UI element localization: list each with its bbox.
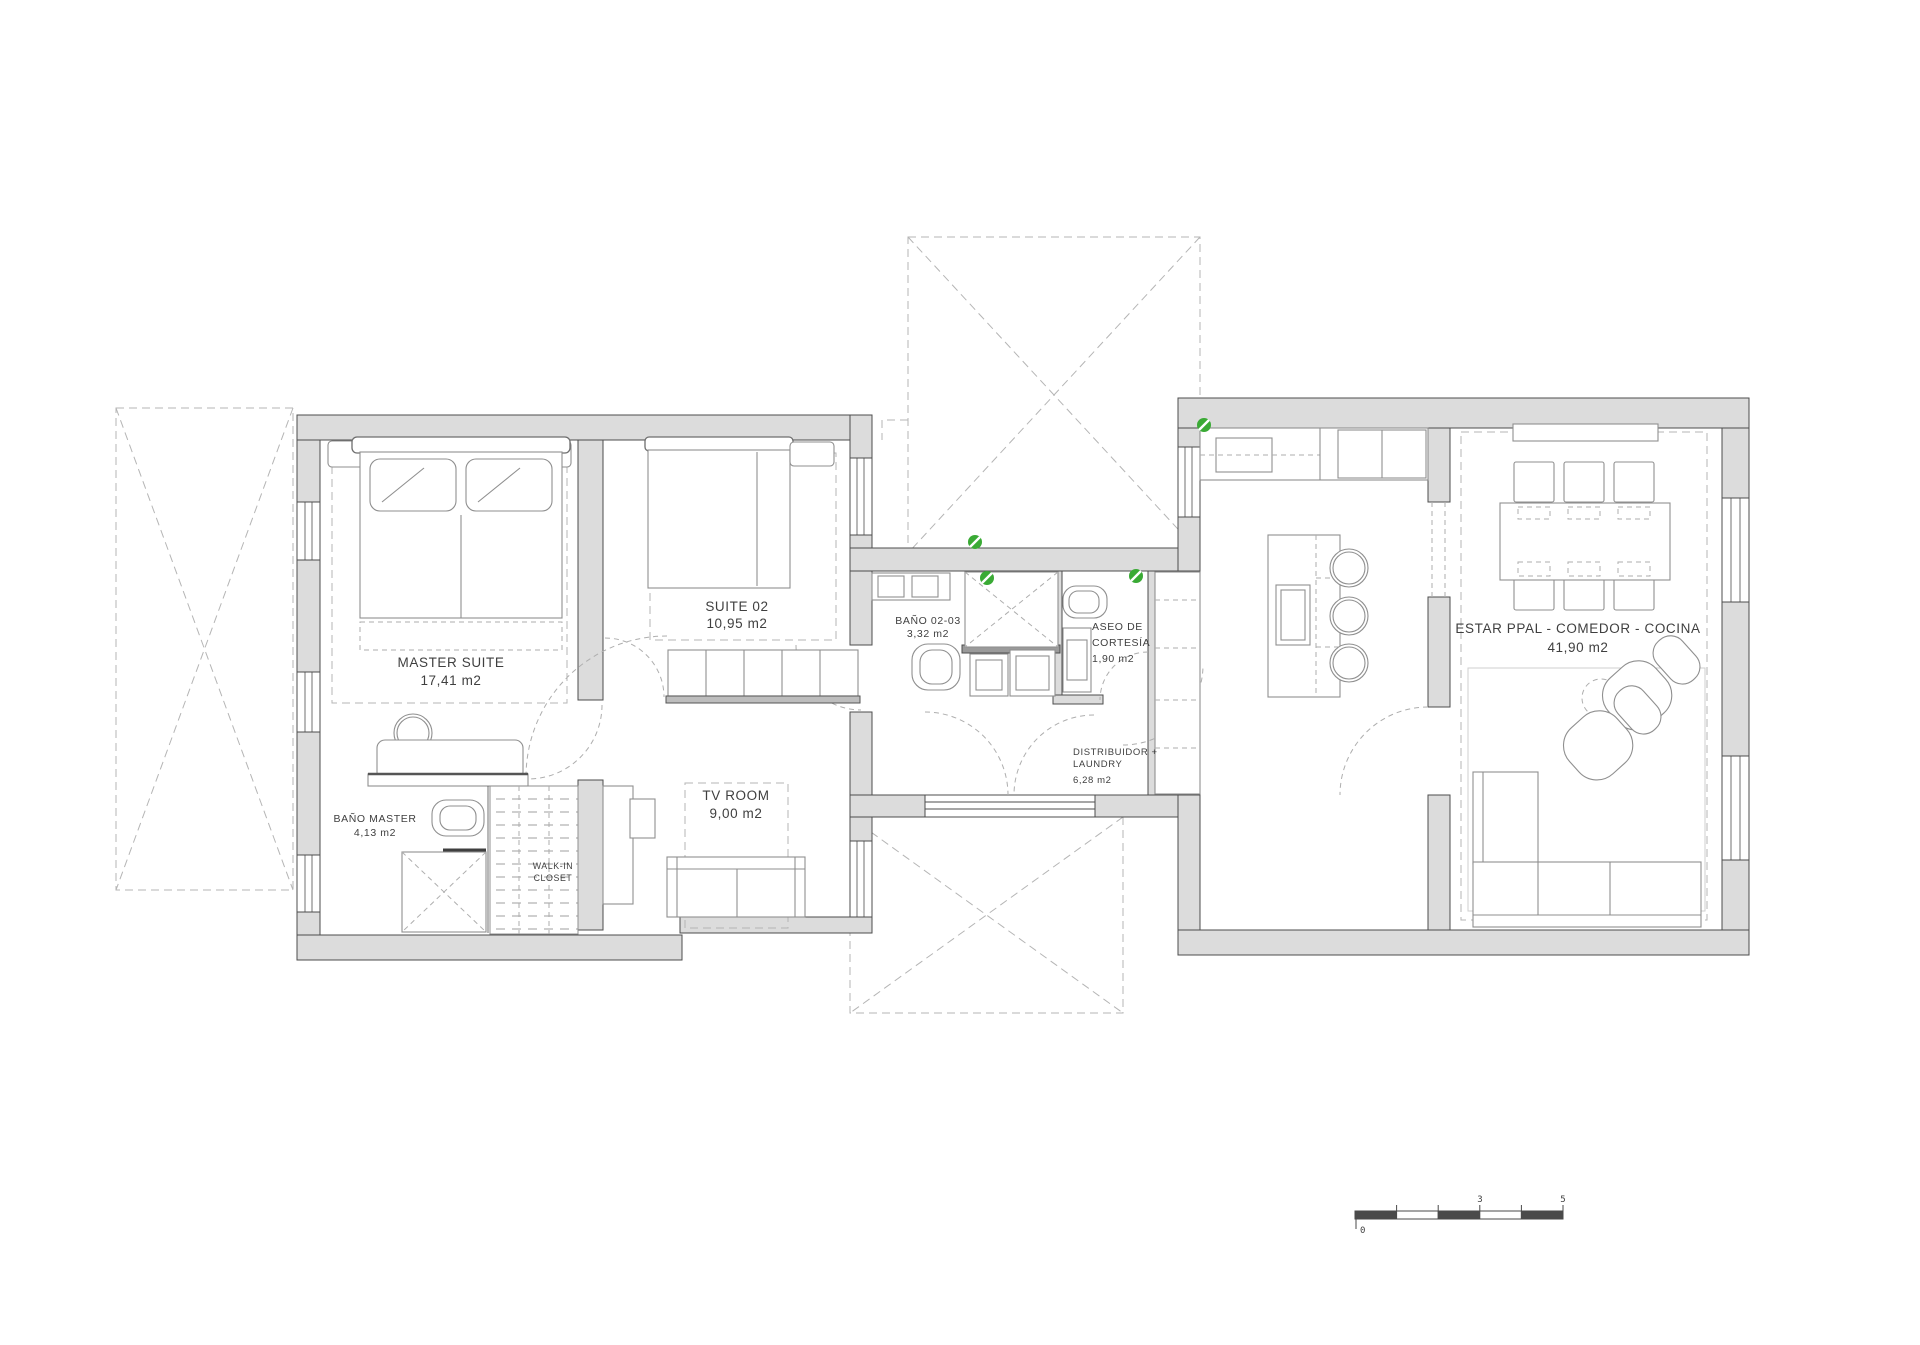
window-master-left-2 xyxy=(297,672,320,732)
suite02-area: 10,95 m2 xyxy=(706,616,767,631)
kitchen-island xyxy=(1268,535,1340,697)
scale-bar: 0 3 5 xyxy=(1355,1195,1566,1236)
estar-label: ESTAR PPAL - COMEDOR - COCINA xyxy=(1455,621,1700,636)
nightstand xyxy=(790,442,834,466)
living-dining: ESTAR PPAL - COMEDOR - COCINA 41,90 m2 xyxy=(1455,424,1709,927)
tv-cabinet xyxy=(603,786,633,904)
laundry-cabinet xyxy=(1155,572,1200,794)
washer-dryer xyxy=(970,650,1055,696)
pillow-right xyxy=(466,459,552,511)
room-distribuidor: DISTRIBUIDOR + LAUNDRY 6,28 m2 xyxy=(1073,747,1158,786)
scale-label-0: 0 xyxy=(1360,1226,1365,1236)
closet-label-2: CLOSET xyxy=(534,873,573,883)
sink-aseo xyxy=(1063,628,1091,692)
aseo-label-2: CORTESÍA xyxy=(1092,636,1150,649)
scale-label-5: 5 xyxy=(1560,1195,1565,1205)
tv-room-area: 9,00 m2 xyxy=(710,806,763,821)
window-living-east-1 xyxy=(1722,498,1749,602)
dining-set xyxy=(1500,462,1670,610)
master-bed xyxy=(328,437,571,650)
master-desk xyxy=(377,714,523,780)
master-suite-area: 17,41 m2 xyxy=(420,673,481,688)
double-sink-counter xyxy=(872,573,950,600)
master-suite-label: MASTER SUITE xyxy=(398,655,505,670)
toilet-02-03 xyxy=(912,644,960,690)
plant-marker-icon xyxy=(1197,418,1211,432)
patio-top xyxy=(882,237,1200,553)
corner-sofa xyxy=(1473,772,1701,927)
room-bano-02-03: BAÑO 02-03 3,32 m2 xyxy=(872,572,1058,696)
room-tv: TV ROOM 9,00 m2 xyxy=(603,783,805,928)
window-kitchen-west xyxy=(1178,447,1200,517)
window-master-left-1 xyxy=(297,502,320,560)
closet-shelving xyxy=(490,786,578,934)
tv-sofa xyxy=(667,857,805,917)
aseo-label-1: ASEO DE xyxy=(1092,621,1143,633)
bano-02-03-label: BAÑO 02-03 xyxy=(895,614,961,627)
window-bath-left-3 xyxy=(297,855,320,912)
room-walk-in-closet: WALK-IN CLOSET xyxy=(490,786,578,934)
bano-master-label: BAÑO MASTER xyxy=(333,812,416,825)
plant-marker-icon xyxy=(1129,569,1143,583)
distribuidor-label-2: LAUNDRY xyxy=(1073,759,1122,770)
scale-label-3: 3 xyxy=(1477,1195,1482,1205)
suite02-wardrobe xyxy=(666,650,860,703)
headboard xyxy=(352,437,570,453)
window-suite02-east xyxy=(850,458,872,535)
tv-room-label: TV ROOM xyxy=(702,788,769,803)
kitchen xyxy=(1200,428,1428,697)
bed-bench xyxy=(360,622,562,650)
plant-marker-icon xyxy=(980,571,994,585)
distribuidor-area: 6,28 m2 xyxy=(1073,775,1112,786)
window-living-east-2 xyxy=(1722,756,1749,860)
dining-table xyxy=(1500,503,1670,580)
floor-plan-drawing: MASTER SUITE 17,41 m2 BAÑO MASTER 4,13 m… xyxy=(0,0,1920,1345)
bed-body xyxy=(648,450,790,588)
patio-bottom xyxy=(850,817,1123,1013)
kitchen-counter xyxy=(1200,428,1428,480)
entry-door xyxy=(925,795,1095,817)
floor-plan-page: MASTER SUITE 17,41 m2 BAÑO MASTER 4,13 m… xyxy=(0,0,1920,1345)
bano-master-area: 4,13 m2 xyxy=(354,827,396,839)
shower xyxy=(402,850,486,932)
suite02-label: SUITE 02 xyxy=(705,599,768,614)
bano-02-03-area: 3,32 m2 xyxy=(907,628,949,640)
closet-label-1: WALK-IN xyxy=(533,861,574,871)
room-suite-02: SUITE 02 10,95 m2 xyxy=(645,437,860,703)
suite02-bed xyxy=(645,437,834,588)
tv-screen xyxy=(630,799,655,838)
shower-02-03 xyxy=(965,572,1058,647)
aseo-area: 1,90 m2 xyxy=(1092,653,1134,665)
patio-left xyxy=(116,408,293,890)
toilet-aseo xyxy=(1063,586,1107,618)
sliding-opening-kitchen-dining xyxy=(1432,502,1445,597)
vanity-counter xyxy=(368,774,528,786)
distribuidor-label-1: DISTRIBUIDOR + xyxy=(1073,747,1158,758)
headboard xyxy=(645,437,793,451)
window-tvroom-east xyxy=(850,841,872,917)
plant-marker-icon xyxy=(968,535,982,549)
sideboard xyxy=(1513,424,1658,441)
pillow-left xyxy=(370,459,456,511)
estar-area: 41,90 m2 xyxy=(1547,640,1608,655)
bar-stools xyxy=(1330,549,1368,682)
